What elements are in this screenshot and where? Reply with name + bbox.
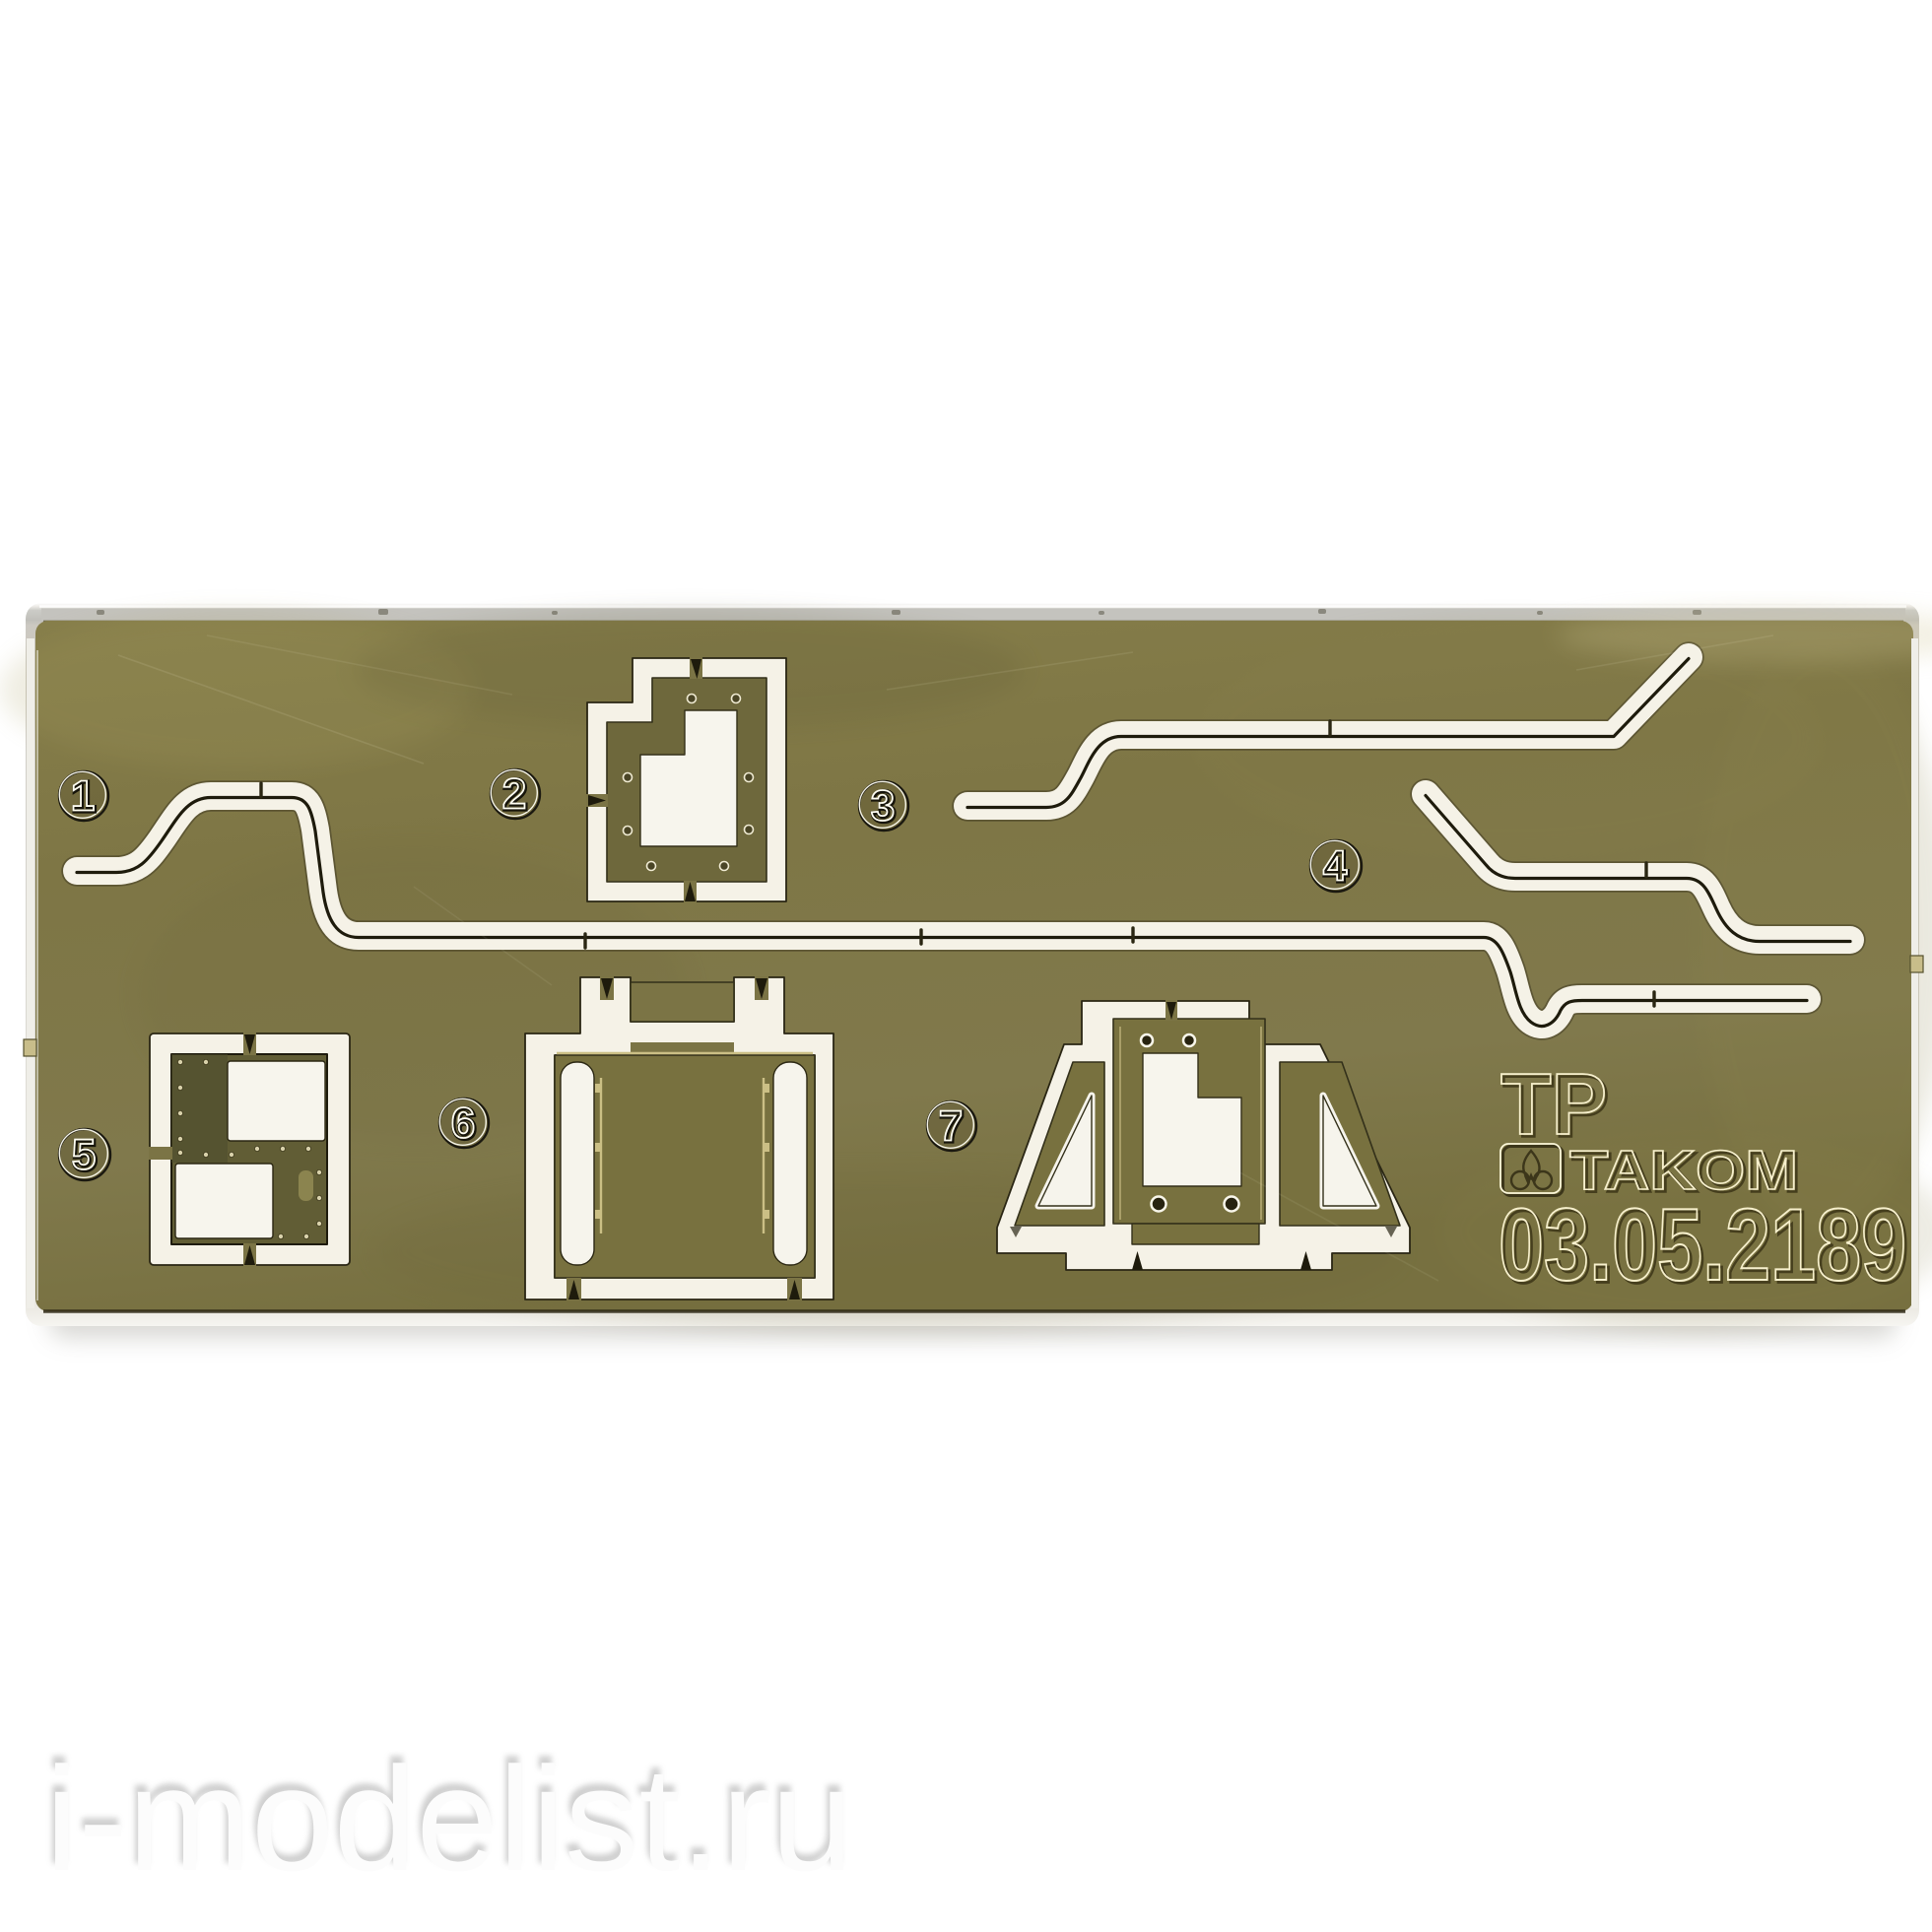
- svg-text:03.05.2189: 03.05.2189: [1499, 1188, 1906, 1302]
- svg-text:2: 2: [502, 770, 526, 819]
- svg-text:1: 1: [71, 772, 95, 821]
- svg-text:3: 3: [871, 782, 895, 831]
- svg-text:i-modelist.ru: i-modelist.ru: [45, 1736, 853, 1901]
- svg-text:4: 4: [1323, 842, 1348, 891]
- svg-text:6: 6: [451, 1099, 475, 1148]
- svg-text:5: 5: [72, 1131, 96, 1179]
- svg-text:7: 7: [939, 1102, 963, 1151]
